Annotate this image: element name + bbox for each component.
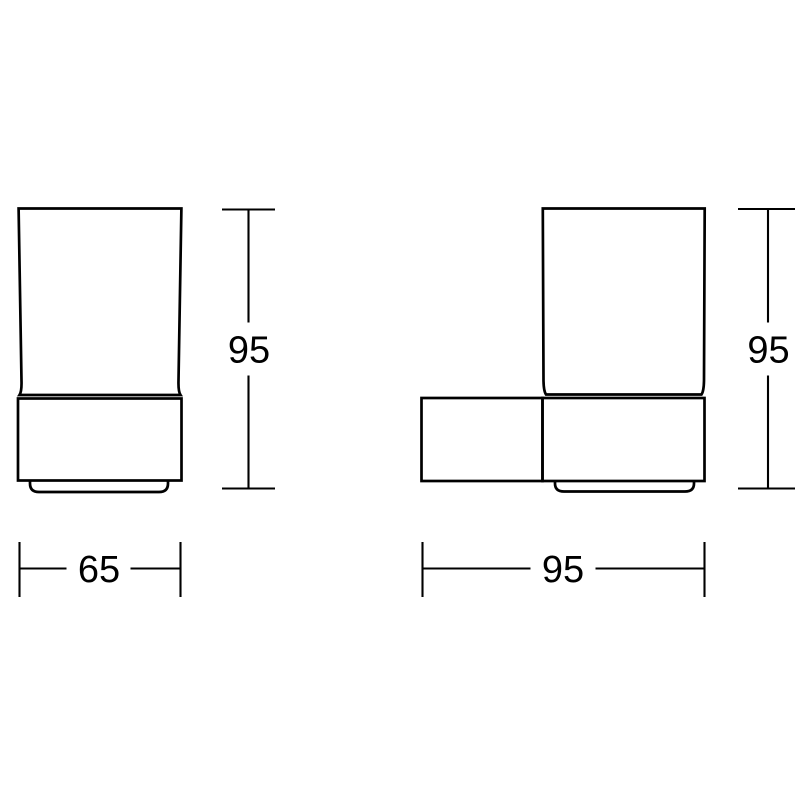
front-cup-outline [19,209,182,396]
front-holder-ring [18,399,182,481]
front-width-dimension: 65 [20,542,181,597]
front-view: 95 65 [18,209,275,598]
side-depth-value: 95 [542,549,584,591]
front-width-value: 65 [78,549,120,591]
side-cup-outline [543,209,705,395]
side-depth-dimension: 95 [423,542,705,597]
side-holder-ring [543,398,705,481]
tumbler-holder-technical-drawing: 95 65 [0,0,800,800]
side-wall-plate [422,398,543,481]
side-view: 95 95 [422,209,796,598]
drawing-canvas: 95 65 [0,0,800,800]
front-cup-base [30,481,168,493]
front-height-value: 95 [228,330,270,372]
front-height-dimension: 95 [222,210,275,489]
side-height-dimension: 95 [738,209,795,489]
side-height-value: 95 [747,330,789,372]
